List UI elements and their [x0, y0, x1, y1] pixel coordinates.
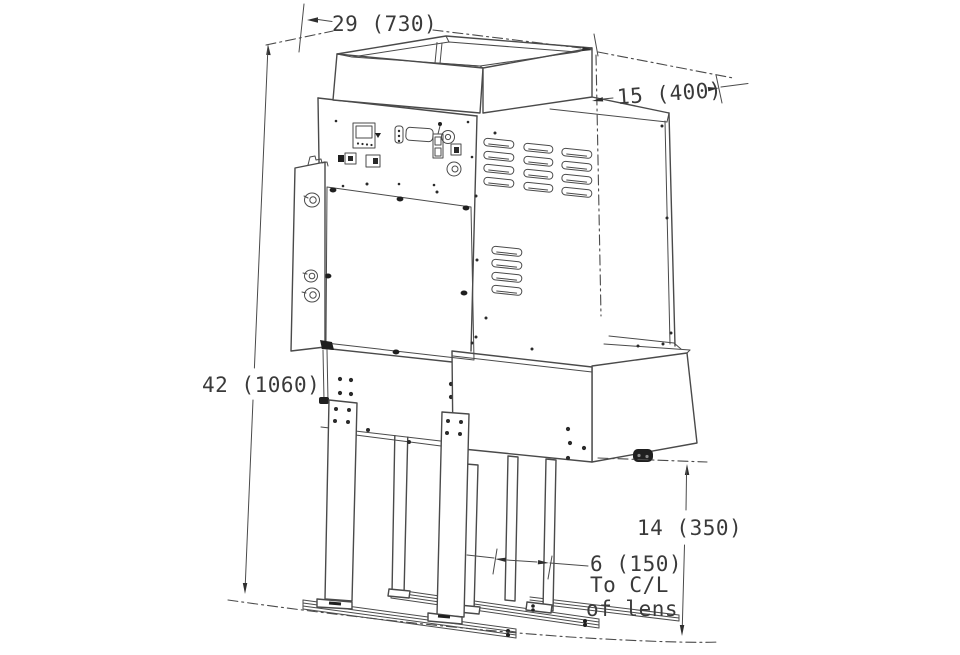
dim-lens-offset-note2: of lens: [586, 597, 678, 621]
dim-top-width-label: 29 (730): [332, 12, 437, 36]
pipe-clamp: [319, 397, 329, 404]
dim-lens-height-label: 14 (350): [637, 516, 742, 540]
dimension-depth: 15 (400): [592, 52, 748, 109]
lens-box-leg-left: [505, 456, 518, 601]
dim-lens-offset-note1: To C/L: [590, 573, 669, 597]
hopper: [333, 36, 592, 113]
rear-leg-left: [388, 425, 410, 598]
dim-depth-label: 15 (400): [616, 78, 723, 109]
front-leg-left: [317, 400, 357, 609]
front-leg-right: [428, 412, 469, 624]
dimension-top-width: 29 (730): [299, 4, 598, 56]
machine-dimension-drawing: 29 (730) 15 (400) 42 (1060) 14 (350): [0, 0, 960, 655]
dim-overall-height-label: 42 (1060): [202, 373, 320, 397]
technical-drawing-page: 29 (730) 15 (400) 42 (1060) 14 (350): [0, 0, 960, 655]
lens-housing-box: [452, 336, 697, 462]
lens-box-leg-right: [526, 459, 556, 613]
